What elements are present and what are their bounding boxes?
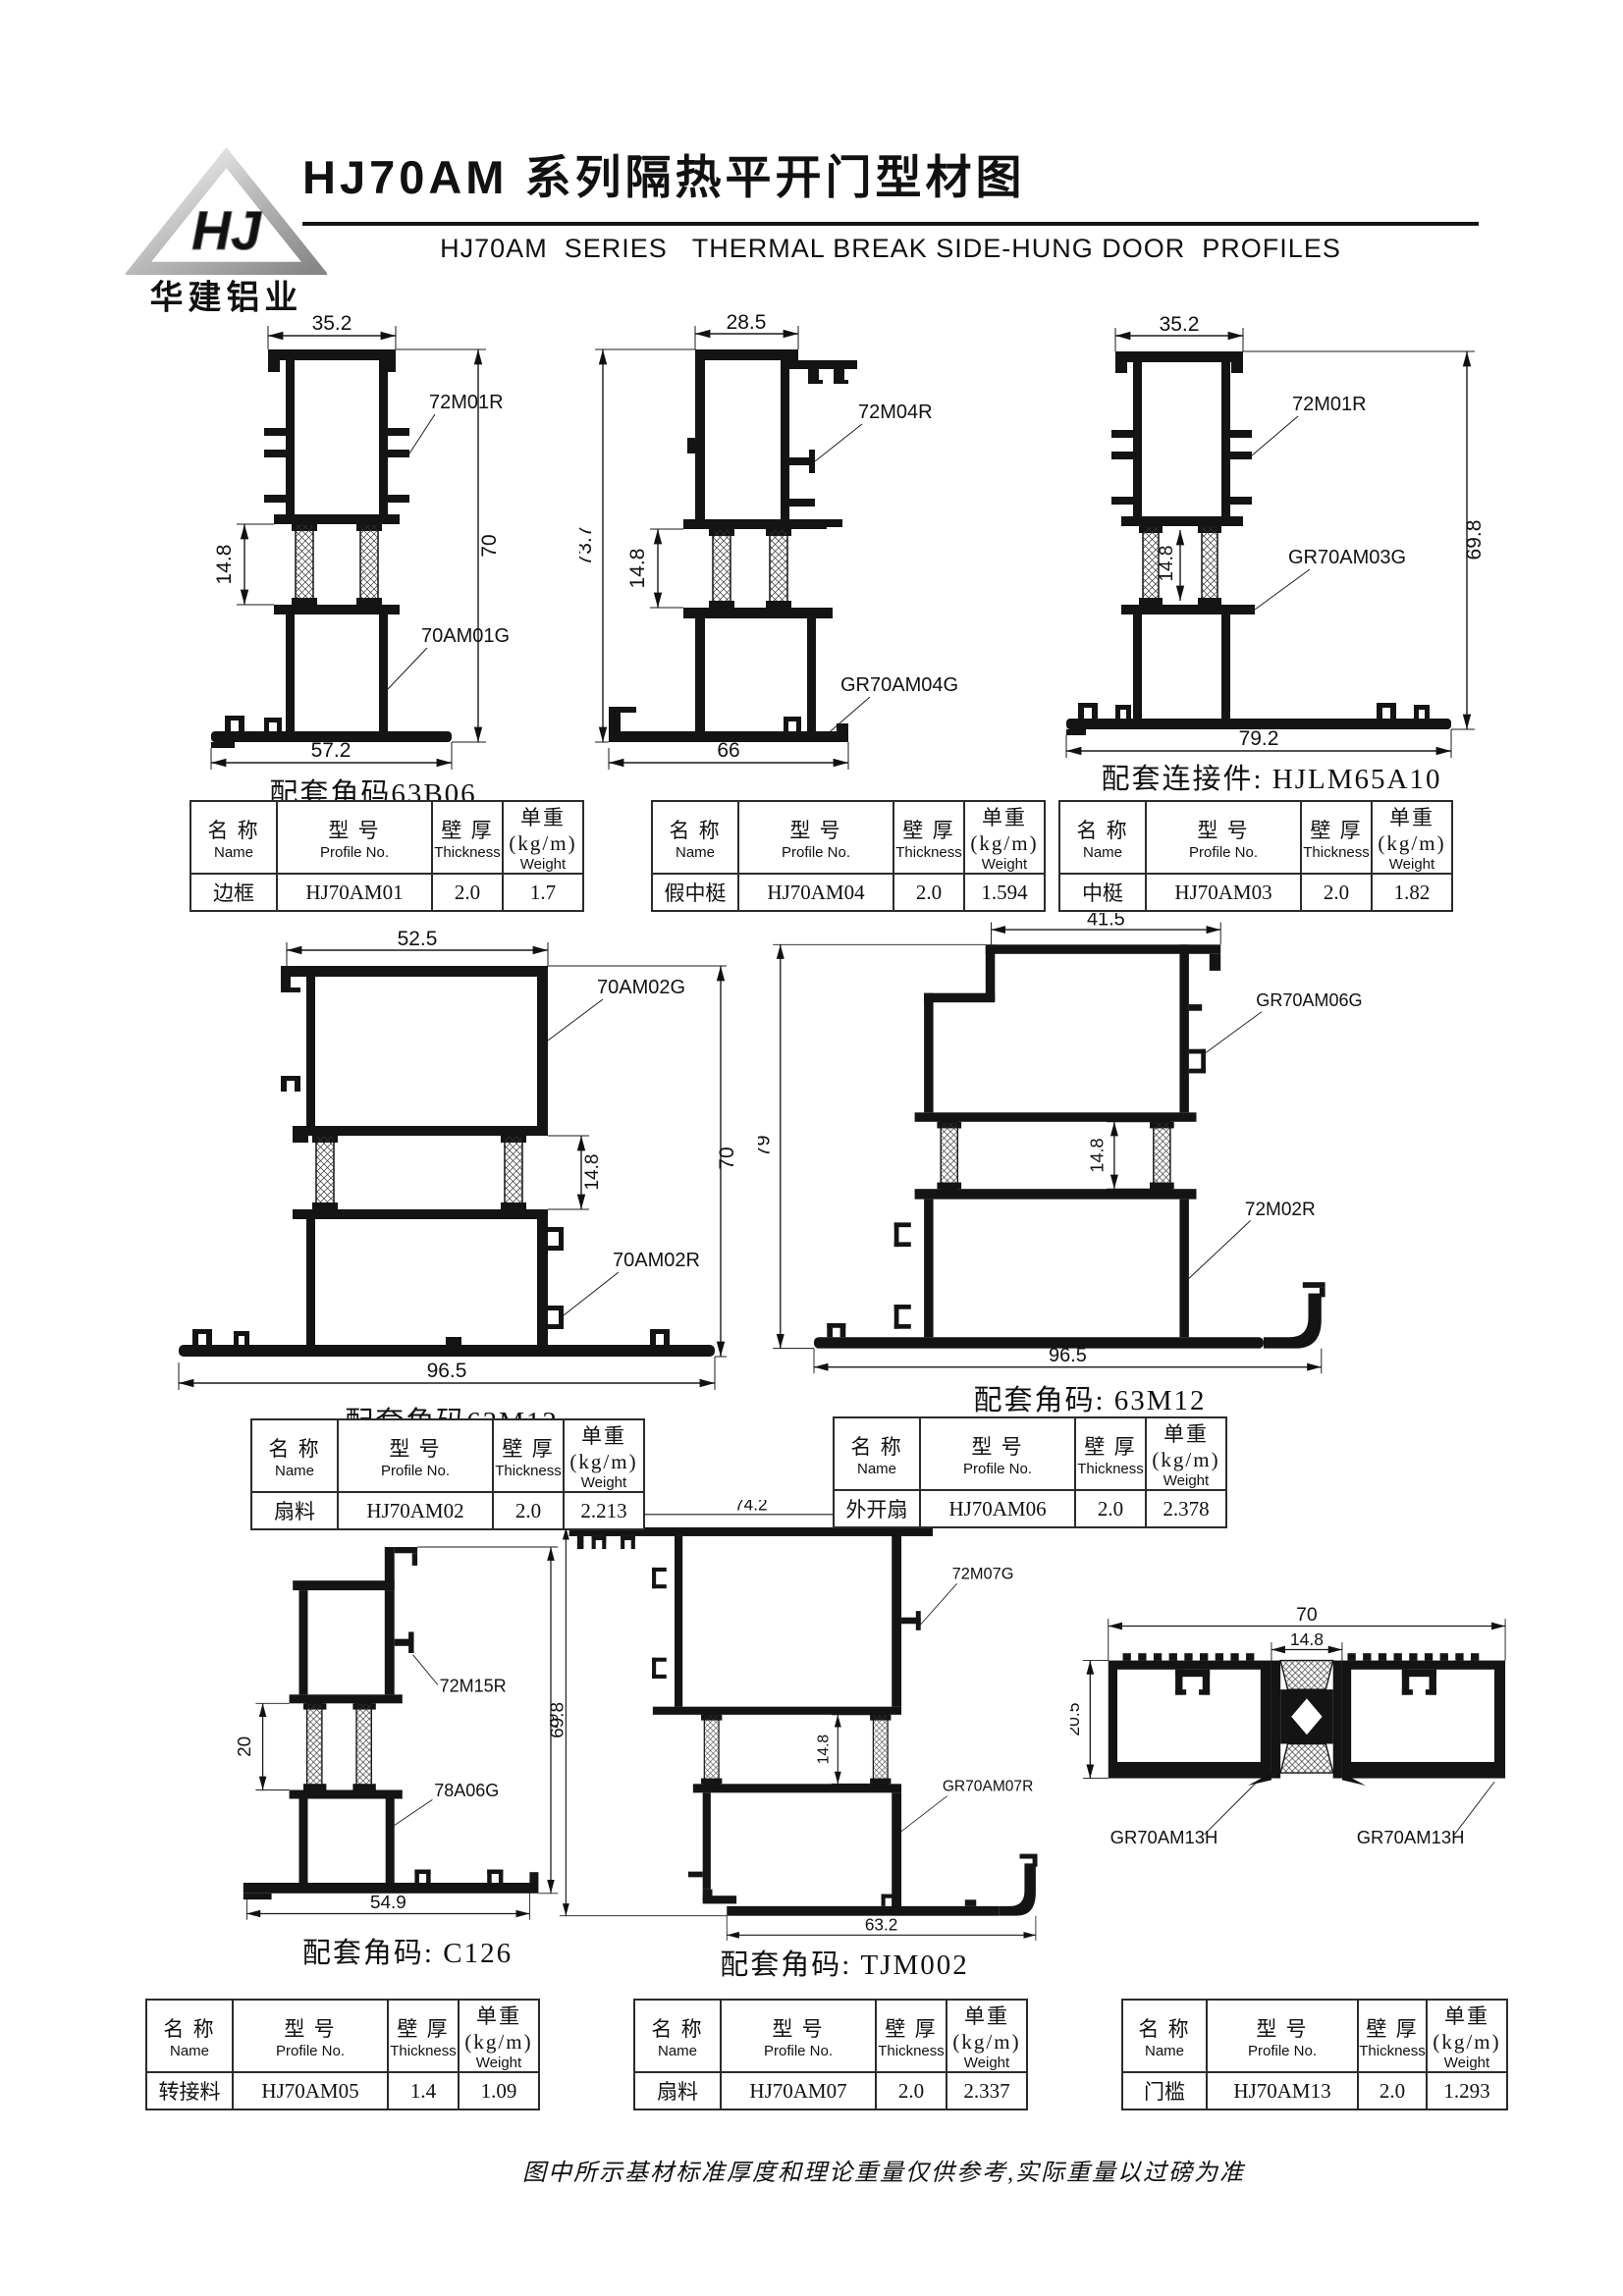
- col-name-cn: 名 称: [191, 815, 276, 844]
- drawing-sash-hj70am07: 74.2 79 14.8 63.2 72M07G GR70AM07R: [550, 1500, 1049, 1950]
- dim-top: 70: [1296, 1604, 1318, 1626]
- cell-thickness: 2.0: [1301, 874, 1372, 911]
- cell-name: 扇料: [251, 1492, 338, 1529]
- cell-weight: 2.337: [947, 2072, 1027, 2109]
- dim-height: 20.5: [1070, 1703, 1083, 1736]
- cell-name: 外开扇: [834, 1490, 920, 1527]
- company-logo: HJ 华建铝业: [126, 145, 327, 322]
- part-label: 72M01R: [429, 392, 504, 413]
- cell-profile-no: HJ70AM04: [738, 874, 893, 911]
- drawing-threshold-hj70am13: 70 14.8 20.5 GR70AM13H GR70AM13H: [1070, 1600, 1542, 1911]
- dimensions: 74.2 79 14.8 63.2 72M07G GR70AM07R: [550, 1500, 1036, 1941]
- cell-thickness: 2.0: [876, 2072, 947, 2109]
- table-row: 门槛 HJ70AM13 2.0 1.293: [1122, 2072, 1507, 2109]
- cell-name: 假中梃: [652, 874, 738, 911]
- dim-height: 73.7: [579, 526, 596, 566]
- spec-table-hj70am07: 名 称Name 型 号Profile No. 壁 厚Thickness 单重(k…: [633, 1999, 1028, 2110]
- part-label: 72M01R: [1292, 394, 1367, 415]
- dim-break: 20: [235, 1736, 255, 1757]
- cell-name: 转接料: [146, 2072, 233, 2109]
- dim-top: 52.5: [398, 931, 438, 950]
- col-name-en: Name: [191, 844, 276, 861]
- cell-profile-no: HJ70AM13: [1207, 2072, 1358, 2109]
- dim-break: 14.8: [1290, 1629, 1324, 1649]
- part-label: GR70AM13H: [1357, 1827, 1465, 1847]
- col-profile-cn: 型 号: [278, 815, 431, 844]
- part-label: GR70AM07R: [943, 1779, 1033, 1795]
- part-label: GR70AM13H: [1110, 1827, 1218, 1847]
- cell-weight: 1.7: [503, 874, 583, 911]
- part-label: 70AM02G: [597, 977, 685, 998]
- dim-height: 69.8: [1463, 520, 1485, 561]
- profile-geometry: [211, 349, 452, 748]
- title-underline: [302, 222, 1479, 226]
- cell-name: 中梃: [1059, 874, 1146, 911]
- dim-bottom: 79.2: [1239, 727, 1279, 750]
- dim-height: 79: [758, 1135, 774, 1156]
- part-label: GR70AM03G: [1288, 547, 1406, 568]
- dim-break: 14.8: [213, 545, 236, 585]
- profile-sheet-page: HJ 华建铝业 HJ70AM 系列隔热平开门型材图 HJ70AM SERIES …: [0, 0, 1623, 2296]
- cell-profile-no: HJ70AM06: [920, 1490, 1075, 1527]
- footer-note: 图中所示基材标准厚度和理论重量仅供参考,实际重量以过磅为准: [147, 2153, 1620, 2187]
- part-label: GR70AM04G: [840, 674, 958, 696]
- caption-drawing-3: 配套连接件: HJLM65A10: [1065, 756, 1478, 797]
- cell-weight: 1.594: [964, 874, 1045, 911]
- cell-weight: 1.293: [1427, 2072, 1507, 2109]
- table-row: 中梃 HJ70AM03 2.0 1.82: [1059, 874, 1452, 911]
- cell-thickness: 2.0: [893, 874, 964, 911]
- cell-profile-no: HJ70AM01: [277, 874, 432, 911]
- table-row: 假中梃 HJ70AM04 2.0 1.594: [652, 874, 1045, 911]
- profile-geometry: [179, 966, 715, 1357]
- spec-table-hj70am02: 名 称Name 型 号Profile No. 壁 厚Thickness 单重(k…: [250, 1418, 645, 1530]
- part-label: 72M07G: [952, 1565, 1014, 1582]
- logo-triangle-icon: HJ: [137, 158, 314, 269]
- dim-bottom: 96.5: [1049, 1345, 1087, 1366]
- part-label: 72M02R: [1245, 1200, 1316, 1220]
- part-label: 70AM01G: [421, 625, 510, 647]
- dim-break: 14.8: [626, 549, 649, 589]
- profile-geometry: [609, 349, 857, 742]
- spec-table-hj70am13: 名 称Name 型 号Profile No. 壁 厚Thickness 单重(k…: [1121, 1999, 1508, 2110]
- dim-break: 14.8: [815, 1735, 832, 1764]
- cell-thickness: 2.0: [493, 1492, 564, 1529]
- cell-weight: 1.82: [1372, 874, 1452, 911]
- dim-top: 35.2: [312, 314, 352, 335]
- col-weight-cn: 单重(kg/m): [504, 802, 582, 856]
- col-weight-en: Weight: [504, 856, 582, 873]
- dim-bottom: 66: [717, 739, 739, 762]
- cell-profile-no: HJ70AM07: [721, 2072, 876, 2109]
- part-label: 72M15R: [440, 1677, 507, 1696]
- dimensions: 20 54.9 69.8 72M15R 78A06G: [235, 1547, 568, 1920]
- page-subtitle: HJ70AM SERIES THERMAL BREAK SIDE-HUNG DO…: [302, 234, 1479, 264]
- cell-name: 扇料: [634, 2072, 721, 2109]
- caption-drawing-5: 配套角码: 63M12: [913, 1377, 1267, 1418]
- cell-weight: 2.213: [564, 1492, 644, 1529]
- dim-top: 35.2: [1160, 316, 1200, 336]
- dim-top: 28.5: [727, 314, 767, 334]
- profile-geometry: [1066, 351, 1451, 735]
- part-label: 70AM02R: [613, 1250, 700, 1271]
- part-label: 72M04R: [858, 401, 933, 423]
- dimensions: 28.5 73.7 14.8 66 72M04R GR70AM04G: [579, 314, 958, 770]
- col-thickness-en: Thickness: [433, 844, 502, 861]
- col-profile-en: Profile No.: [278, 844, 431, 861]
- profile-geometry: [814, 944, 1325, 1348]
- dimensions: 35.2 14.8 79.2 69.8 72M01R GR70AM03G: [1066, 316, 1485, 758]
- dim-top: 74.2: [734, 1500, 767, 1515]
- dim-break: 14.8: [582, 1154, 603, 1191]
- cell-weight: 2.378: [1146, 1490, 1226, 1527]
- dim-bottom: 96.5: [427, 1360, 467, 1382]
- dim-height: 70: [478, 534, 501, 557]
- drawing-mullion-hj70am03: 35.2 14.8 79.2 69.8 72M01R GR70AM03G: [1053, 316, 1485, 768]
- spec-table-hj70am01: 名 称Name 型 号Profile No. 壁 厚Thickness 单重(k…: [189, 800, 584, 912]
- col-thickness-cn: 壁 厚: [433, 815, 502, 844]
- drawing-false-mullion-hj70am04: 28.5 73.7 14.8 66 72M04R GR70AM04G: [579, 314, 972, 780]
- dim-height: 70: [716, 1147, 738, 1169]
- profile-geometry: [1109, 1653, 1505, 1786]
- dim-break: 14.8: [1088, 1138, 1108, 1172]
- spec-table-hj70am06: 名 称Name 型 号Profile No. 壁 厚Thickness 单重(k…: [833, 1416, 1227, 1528]
- logo-company-name: 华建铝业: [150, 279, 303, 316]
- drawing-frame-hj70am01: 35.2 57.2 70 14.8 72M01R 70AM01G: [182, 314, 520, 780]
- cell-thickness: 2.0: [1075, 1490, 1146, 1527]
- dimensions: 79 41.5 14.8 96.5 GR70AM06G 72M02R: [758, 913, 1363, 1373]
- spec-table-hj70am05: 名 称Name 型 号Profile No. 壁 厚Thickness 单重(k…: [145, 1999, 540, 2110]
- part-label: 78A06G: [434, 1781, 499, 1800]
- dim-bottom: 57.2: [311, 739, 352, 762]
- drawing-outward-sash-hj70am06: 79 41.5 14.8 96.5 GR70AM06G 72M02R: [758, 913, 1374, 1379]
- cell-thickness: 2.0: [432, 874, 503, 911]
- cell-thickness: 2.0: [1358, 2072, 1427, 2109]
- table-row: 外开扇 HJ70AM06 2.0 2.378: [834, 1490, 1226, 1527]
- dim-top: 41.5: [1087, 913, 1125, 930]
- logo-monogram: HJ: [191, 200, 262, 261]
- cell-thickness: 1.4: [388, 2072, 459, 2109]
- cell-profile-no: HJ70AM03: [1146, 874, 1301, 911]
- cell-name: 门槛: [1122, 2072, 1207, 2109]
- dim-bottom: 54.9: [370, 1893, 406, 1913]
- cell-profile-no: HJ70AM05: [233, 2072, 388, 2109]
- cell-profile-no: HJ70AM02: [338, 1492, 493, 1529]
- cell-name: 边框: [190, 874, 277, 911]
- dim-bottom: 63.2: [865, 1914, 897, 1934]
- profile-geometry: [569, 1527, 1038, 1916]
- drawing-sash-hj70am02: 52.5 14.8 96.5 70 70AM02G 70AM02R: [159, 931, 738, 1402]
- spec-table-hj70am04: 名 称Name 型 号Profile No. 壁 厚Thickness 单重(k…: [651, 800, 1046, 912]
- page-title: HJ70AM 系列隔热平开门型材图: [302, 139, 1026, 207]
- table-row: 转接料 HJ70AM05 1.4 1.09: [146, 2072, 539, 2109]
- dimensions: 52.5 14.8 96.5 70 70AM02G 70AM02R: [179, 931, 738, 1390]
- dim-break: 14.8: [1157, 546, 1177, 582]
- profile-geometry: [243, 1547, 539, 1899]
- dim-height: 79: [550, 1714, 562, 1731]
- part-label: GR70AM06G: [1256, 990, 1362, 1010]
- caption-drawing-7: 配套角码: TJM002: [668, 1942, 1021, 1983]
- caption-drawing-6: 配套角码: C126: [250, 1930, 565, 1971]
- drawing-adapter-hj70am05: 20 54.9 69.8 72M15R 78A06G: [162, 1512, 577, 1936]
- cell-weight: 1.09: [459, 2072, 539, 2109]
- table-row: 扇料 HJ70AM07 2.0 2.337: [634, 2072, 1027, 2109]
- table-row: 边框 HJ70AM01 2.0 1.7: [190, 874, 583, 911]
- table-row: 扇料 HJ70AM02 2.0 2.213: [251, 1492, 644, 1529]
- spec-table-hj70am03: 名 称Name 型 号Profile No. 壁 厚Thickness 单重(k…: [1058, 800, 1453, 912]
